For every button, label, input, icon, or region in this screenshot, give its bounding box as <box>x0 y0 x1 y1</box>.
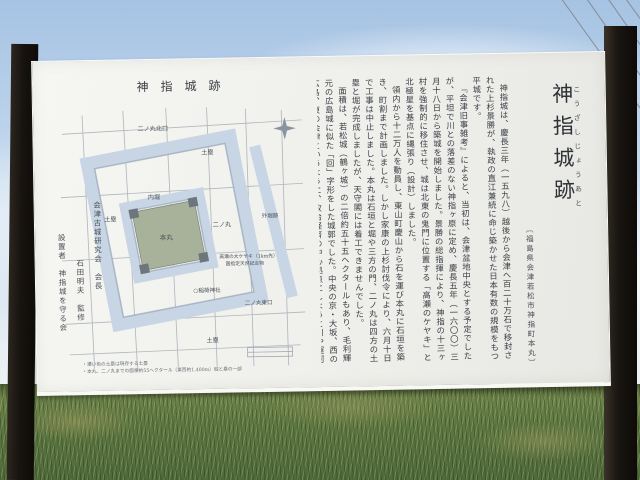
photo-of-information-sign: 神指城跡 <box>0 0 640 480</box>
map-label: 二ノ丸 <box>213 220 232 228</box>
paragraph: 面積は、若松城（鶴ヶ城）の二倍約五十五ヘクタールもあり、毛利輝元の広島城に似た「… <box>316 79 353 370</box>
title-text: 神指城跡 <box>550 83 576 211</box>
grass-field <box>0 384 640 480</box>
title-furigana: こうざしじょうあと <box>573 82 583 210</box>
map-label: 二ノ丸北口 <box>137 124 168 133</box>
map-label: 土塁 <box>206 336 218 344</box>
map-panel: 神指城跡 <box>46 67 315 384</box>
sign-post-right <box>604 26 637 480</box>
body-text: 神指城は、慶長三年（一五九八）越後から会津へ百二十万石で移封された上杉景勝が、執… <box>316 76 514 369</box>
text-panel: 神指城跡 こうざしじょうあと 〔福島県会津若松市神指町本丸〕 神指城は、慶長三年… <box>316 74 595 369</box>
paragraph: 領内から十二万人を動員し、東山町慶山から石を運び本丸に石垣を築き、町割まで計画し… <box>348 78 407 369</box>
map-label: 本丸 <box>160 233 174 242</box>
map-label: 土塁 <box>201 148 213 156</box>
map-label: 内堀 <box>148 193 160 201</box>
paragraph: 『会津旧事雑考』によると、当初は、会津盆地中央とする予定でしたが、平坦で川との落… <box>402 76 474 367</box>
map-label: 国指定天然記念物 <box>226 260 265 268</box>
page-title: 神指城跡 こうざしじょうあと <box>547 82 586 365</box>
paragraph: 神指城は、慶長三年（一五九八）越後から会津へ百二十万石で移封された上杉景勝が、執… <box>469 76 514 367</box>
sign-board: 神指城跡 <box>31 51 611 396</box>
credit-line: 設置者 神指城を守る会 <box>56 233 70 379</box>
map-label: 外堀跡 <box>262 211 279 219</box>
map-label: ○稲荷神社 <box>193 286 221 294</box>
credits: 会津古城研究会 会長 石田明夫 監修 設置者 神指城を守る会 <box>48 167 106 380</box>
location-note: 〔福島県会津若松市神指町本丸〕 <box>524 225 537 365</box>
scale-bar <box>248 347 293 357</box>
credit-line: 石田明夫 監修 <box>75 259 88 379</box>
map-label: 土塁 <box>104 215 116 223</box>
